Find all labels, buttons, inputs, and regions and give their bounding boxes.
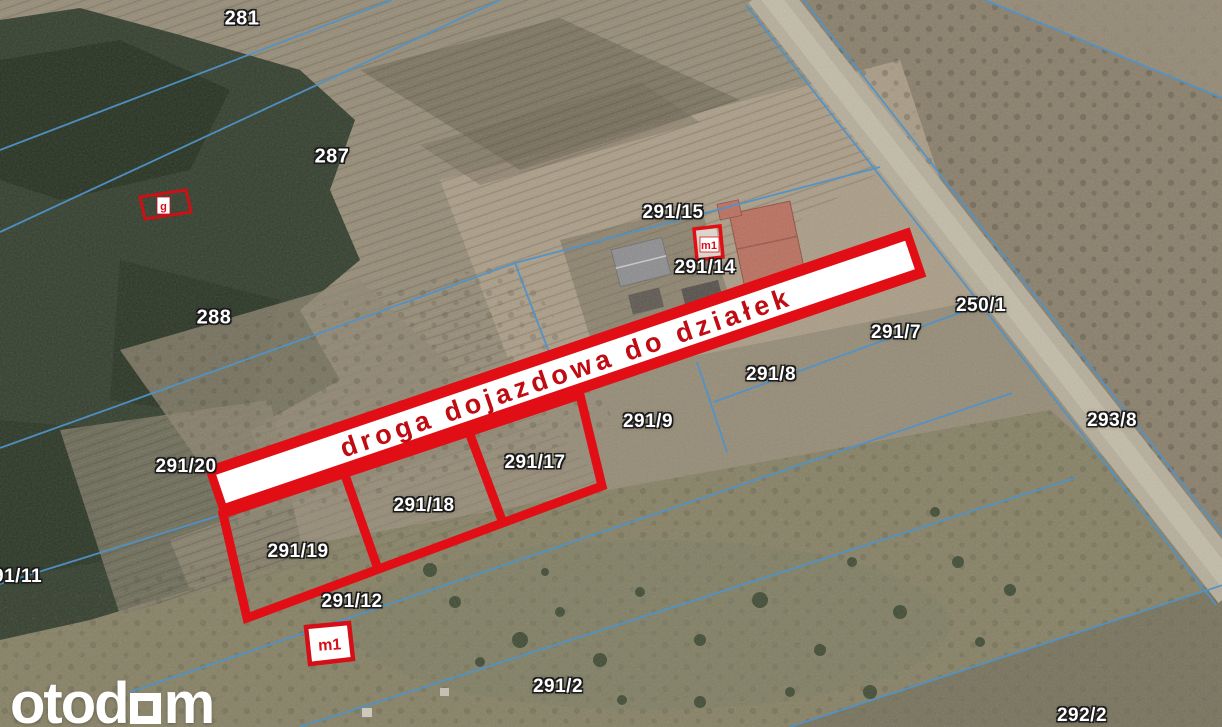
parcel-label-291-12: 291/12 bbox=[321, 591, 382, 613]
parcel-label-291-20: 291/20 bbox=[155, 456, 216, 478]
forest-marker-label: g bbox=[160, 201, 167, 213]
house-marker-label: m1 bbox=[701, 240, 717, 252]
parcel-label-291-9: 291/9 bbox=[623, 411, 673, 433]
parcel-label-291-2: 291/2 bbox=[533, 676, 583, 698]
parcel-label-291-14: 291/14 bbox=[674, 257, 735, 279]
parcel-label-291-19: 291/19 bbox=[267, 541, 328, 563]
parcel-label-281: 281 bbox=[225, 8, 260, 31]
bottom-marker: m1 bbox=[306, 623, 353, 664]
parcel-label-291-15: 291/15 bbox=[642, 202, 703, 224]
aerial-map-screenshot: droga dojazdowa do działek m1 g bbox=[0, 0, 1222, 727]
parcel-label-291-18: 291/18 bbox=[393, 495, 454, 517]
otodom-watermark: otodm bbox=[10, 674, 213, 726]
parcel-label-291-11: 291/11 bbox=[0, 566, 42, 588]
parcel-label-291-17: 291/17 bbox=[504, 452, 565, 474]
aerial-photo: droga dojazdowa do działek m1 g bbox=[0, 0, 1222, 727]
parcel-label-287: 287 bbox=[315, 146, 350, 169]
parcel-label-291-7: 291/7 bbox=[871, 322, 921, 344]
watermark-text-suffix: m bbox=[164, 682, 214, 726]
otodom-square-icon bbox=[130, 693, 161, 724]
parcel-label-293-8: 293/8 bbox=[1087, 410, 1137, 432]
parcel-label-288: 288 bbox=[197, 307, 232, 330]
parcel-label-250-1: 250/1 bbox=[956, 295, 1006, 317]
parcel-label-292-2: 292/2 bbox=[1057, 705, 1107, 727]
bottom-marker-label: m1 bbox=[318, 636, 342, 655]
parcel-label-291-8: 291/8 bbox=[746, 364, 796, 386]
watermark-text-prefix: otod bbox=[10, 682, 128, 726]
